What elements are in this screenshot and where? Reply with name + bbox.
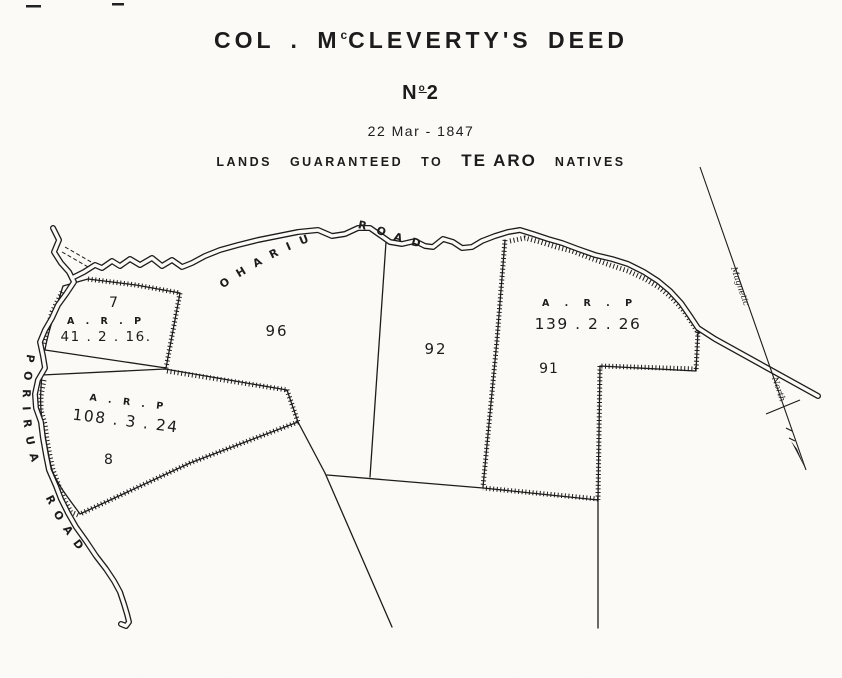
parcel-area-value: 139 . 2 . 26 [535, 315, 642, 333]
parcel-96-number: 96 [265, 322, 288, 340]
parcel-number: 8 [104, 452, 114, 468]
parcel-arp-heading: A . R . P [67, 316, 145, 327]
parcel-area-value: 41 . 2 . 16. [61, 329, 152, 345]
parcel-arp-heading: A . R . P [542, 298, 638, 309]
parcel-number: 91 [539, 361, 559, 377]
scanned-deed-map: { "header": { "title": { "pre": "COL . M… [0, 0, 842, 678]
survey-map-canvas: OHARIU ROAD PORIRUA ROAD Magnetic North … [0, 0, 842, 678]
parcel-number: 7 [109, 295, 119, 311]
parcel-92-number: 92 [424, 340, 447, 358]
